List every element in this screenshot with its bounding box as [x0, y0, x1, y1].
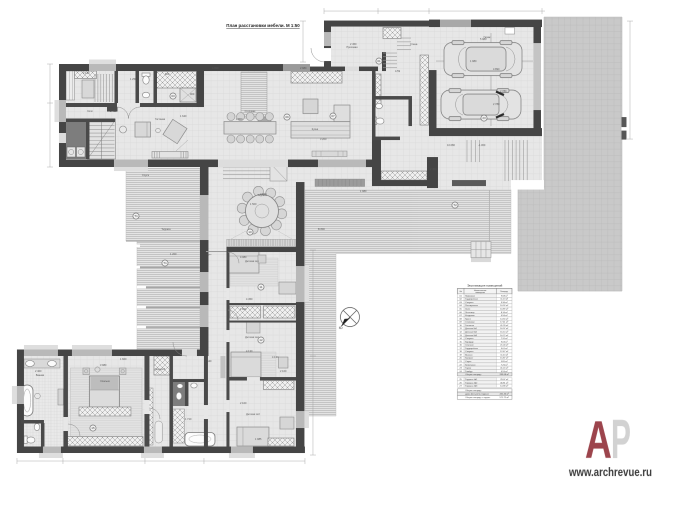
svg-text:11: 11	[259, 285, 262, 289]
svg-text:1 200: 1 200	[170, 252, 177, 256]
svg-text:1 640: 1 640	[180, 114, 187, 118]
svg-text:Гардероб: Гардероб	[155, 368, 166, 371]
svg-text:15: 15	[91, 426, 95, 430]
svg-text:Ванная: Ванная	[36, 374, 45, 377]
svg-text:Ю: Ю	[339, 326, 343, 330]
svg-text:В 800: В 800	[318, 227, 325, 231]
svg-text:41.20 м²: 41.20 м²	[500, 367, 508, 370]
svg-text:2 120: 2 120	[83, 71, 90, 75]
svg-text:4 130: 4 130	[272, 355, 279, 359]
svg-text:14.30 м²: 14.30 м²	[500, 317, 508, 320]
svg-text:Терраса: Терраса	[161, 228, 171, 231]
svg-text:Экспликация помещений: Экспликация помещений	[467, 284, 502, 288]
svg-text:Столовая: Столовая	[245, 110, 256, 113]
svg-text:21.04 м²: 21.04 м²	[500, 344, 508, 347]
svg-text:10.89 м²: 10.89 м²	[500, 308, 508, 311]
svg-text:2 100: 2 100	[280, 369, 287, 373]
svg-text:Детская №3: Детская №3	[465, 334, 478, 337]
svg-text:Детская №3: Детская №3	[246, 413, 260, 416]
svg-text:2 780: 2 780	[493, 102, 500, 106]
svg-text:900: 900	[190, 92, 195, 96]
svg-text:Терраса: Терраса	[257, 194, 267, 197]
svg-text:5.85 м²: 5.85 м²	[501, 360, 508, 363]
svg-text:1 800: 1 800	[236, 117, 243, 121]
svg-text:Гараж: Гараж	[484, 36, 491, 39]
svg-text:14.38 м²: 14.38 м²	[500, 385, 508, 388]
svg-text:41.78 м²: 41.78 м²	[500, 324, 508, 327]
svg-text:11.13 м²: 11.13 м²	[500, 298, 508, 301]
svg-text:10.92 м²: 10.92 м²	[500, 304, 508, 307]
svg-text:16.10 м²: 16.10 м²	[500, 331, 508, 334]
svg-text:1 500: 1 500	[250, 202, 257, 206]
svg-text:Спальня: Спальня	[100, 380, 110, 383]
svg-text:1 980: 1 980	[360, 189, 367, 193]
svg-text:Гостиная: Гостиная	[155, 118, 166, 121]
svg-text:15.87 м²: 15.87 м²	[500, 357, 508, 360]
svg-text:4 450: 4 450	[246, 297, 253, 301]
svg-text:Т1: Т1	[163, 261, 167, 265]
svg-text:2 450: 2 450	[430, 167, 437, 171]
svg-text:600: 600	[165, 72, 170, 76]
svg-text:571.72 м²: 571.72 м²	[500, 396, 509, 399]
svg-text:Общая площадь: Общая площадь	[465, 374, 481, 376]
svg-text:Терраса №3: Терраса №3	[465, 385, 478, 388]
svg-text:78.07 м²: 78.07 м²	[500, 378, 508, 381]
svg-text:1 250: 1 250	[130, 77, 137, 81]
svg-text:Р: Р	[611, 407, 631, 470]
svg-text:Стена: Стена	[410, 42, 418, 46]
svg-text:Детская №2: Детская №2	[465, 331, 478, 334]
svg-text:7.26 м²: 7.26 м²	[501, 363, 508, 366]
svg-text:Площадь: Площадь	[500, 291, 508, 293]
svg-text:03: 03	[171, 94, 175, 98]
svg-text:2 980: 2 980	[300, 66, 307, 70]
svg-text:Спуск: Спуск	[206, 254, 212, 256]
svg-text:www.archrevue.ru: www.archrevue.ru	[568, 465, 652, 479]
svg-text:2 400: 2 400	[35, 369, 42, 373]
svg-text:8.16 м²: 8.16 м²	[501, 311, 508, 314]
svg-text:Холл: Холл	[87, 110, 93, 113]
svg-text:Общая площадь с террас.: Общая площадь с террас.	[465, 397, 491, 399]
svg-text:3 200: 3 200	[320, 137, 327, 141]
svg-text:10: 10	[248, 230, 252, 234]
svg-text:2 400: 2 400	[110, 109, 117, 113]
svg-text:А: А	[585, 411, 612, 470]
svg-text:Кухня: Кухня	[312, 128, 319, 131]
svg-text:Терраса №1: Терраса №1	[465, 378, 478, 381]
svg-text:1 710: 1 710	[185, 417, 192, 421]
svg-text:23: 23	[482, 116, 486, 120]
svg-text:4.56 м²: 4.56 м²	[501, 314, 508, 317]
svg-text:9.01 м²: 9.01 м²	[501, 347, 508, 350]
svg-text:План расстановки мебели. М 1:5: План расстановки мебели. М 1:50	[226, 23, 300, 28]
svg-text:Т1: Т1	[134, 214, 138, 218]
svg-text:4.59 м²: 4.59 м²	[501, 370, 508, 373]
svg-text:12: 12	[259, 338, 263, 342]
svg-text:Детская №2: Детская №2	[245, 336, 259, 339]
svg-text:4 890: 4 890	[493, 67, 500, 71]
svg-text:4 050: 4 050	[212, 66, 219, 70]
svg-text:46.81 м²: 46.81 м²	[500, 381, 508, 384]
svg-text:Терраса №2: Терраса №2	[465, 381, 478, 384]
svg-text:11.20 м²: 11.20 м²	[500, 354, 508, 357]
svg-text:1 980: 1 980	[470, 59, 477, 63]
svg-text:3 980: 3 980	[100, 363, 107, 367]
svg-text:2 100: 2 100	[240, 401, 247, 405]
svg-text:3.36 м²: 3.36 м²	[501, 301, 508, 304]
svg-text:9.68 м²: 9.68 м²	[501, 294, 508, 297]
svg-text:09: 09	[285, 115, 289, 119]
svg-text:7.31 м²: 7.31 м²	[501, 337, 508, 340]
svg-text:283.08 м²: 283.08 м²	[500, 373, 509, 376]
svg-text:1 600: 1 600	[120, 357, 127, 361]
svg-text:Прихожая: Прихожая	[346, 46, 358, 49]
svg-text:17.41 м²: 17.41 м²	[500, 321, 508, 324]
svg-text:Детская №1: Детская №1	[465, 327, 478, 330]
svg-text:1 800: 1 800	[240, 307, 247, 311]
svg-text:2 780: 2 780	[500, 89, 507, 93]
svg-text:9.03 м²: 9.03 м²	[501, 340, 508, 343]
svg-text:Т2: Т2	[453, 203, 457, 207]
svg-text:1 985: 1 985	[255, 437, 262, 441]
svg-text:4.59: 4.59	[395, 69, 401, 73]
svg-text:Детская №1: Детская №1	[245, 260, 259, 263]
svg-text:16.97 м²: 16.97 м²	[500, 327, 508, 330]
svg-text:432.46 м²: 432.46 м²	[500, 393, 509, 396]
svg-text:4 080: 4 080	[240, 255, 247, 259]
svg-text:Спуск: Спуск	[142, 173, 150, 177]
svg-text:-1.360: -1.360	[478, 143, 486, 147]
svg-text:07: 07	[331, 114, 335, 118]
svg-text:4 130: 4 130	[246, 349, 253, 353]
svg-text:01: 01	[377, 59, 381, 63]
svg-text:12.47 м²: 12.47 м²	[500, 350, 508, 353]
svg-text:10.080: 10.080	[447, 143, 455, 147]
svg-text:16.72 м²: 16.72 м²	[500, 334, 508, 337]
svg-text:1 640: 1 640	[205, 359, 212, 363]
